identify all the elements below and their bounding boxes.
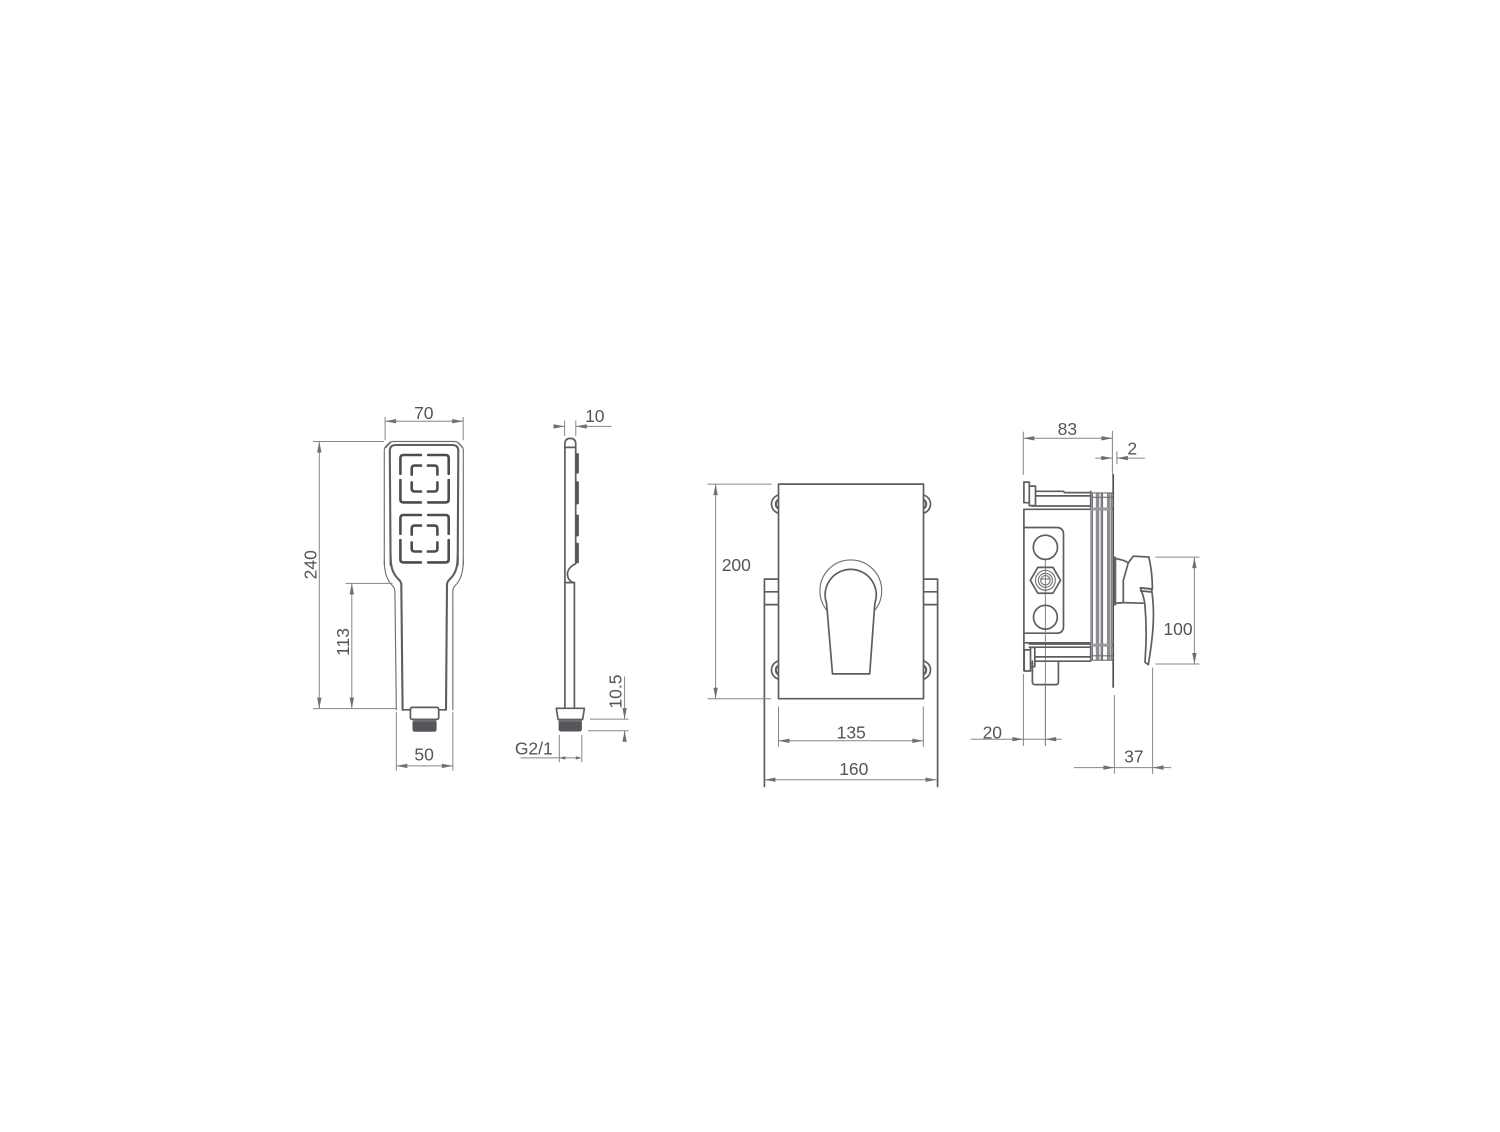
svg-text:37: 37 bbox=[1124, 746, 1143, 766]
svg-text:10: 10 bbox=[585, 406, 605, 426]
svg-text:G2/1: G2/1 bbox=[515, 738, 553, 758]
svg-text:2: 2 bbox=[1127, 438, 1137, 458]
svg-text:10.5: 10.5 bbox=[605, 675, 625, 709]
svg-text:135: 135 bbox=[837, 723, 866, 743]
svg-text:83: 83 bbox=[1058, 419, 1077, 439]
svg-text:160: 160 bbox=[839, 759, 868, 779]
svg-text:200: 200 bbox=[722, 555, 751, 575]
svg-text:240: 240 bbox=[301, 550, 321, 579]
svg-text:113: 113 bbox=[333, 628, 353, 656]
svg-text:100: 100 bbox=[1163, 619, 1192, 639]
svg-text:70: 70 bbox=[414, 403, 434, 423]
svg-text:50: 50 bbox=[414, 745, 434, 765]
svg-text:20: 20 bbox=[983, 723, 1003, 743]
